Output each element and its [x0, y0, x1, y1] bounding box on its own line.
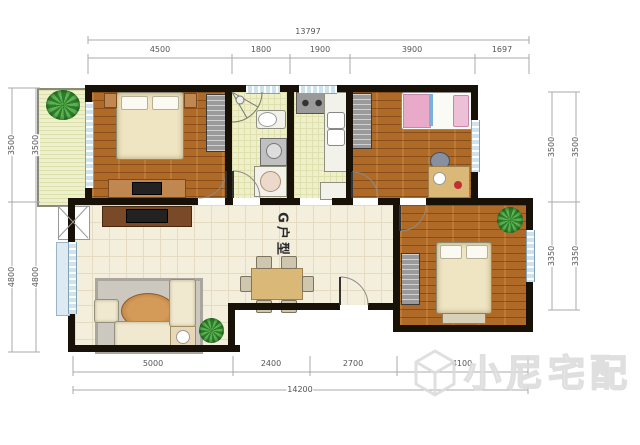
- sofa-chaise: [169, 279, 196, 327]
- bedroom3-window: [526, 230, 535, 282]
- bedroom2-window: [471, 120, 480, 172]
- sink-basin: [327, 112, 345, 129]
- dining-chair: [256, 256, 272, 269]
- table-lamp: [176, 330, 190, 344]
- wall-top: [85, 85, 478, 92]
- wash-basin: [260, 171, 281, 192]
- pillow: [152, 96, 179, 110]
- balcony-window: [85, 102, 94, 188]
- armchair: [94, 299, 119, 323]
- dim-left-seg: 3500: [32, 134, 40, 156]
- pillow: [440, 245, 462, 259]
- sink-basin: [327, 129, 345, 146]
- plant-icon: [199, 318, 224, 343]
- floor-plan-canvas: 13797 4500 1800 1900 3900 1697 5000 2400…: [0, 0, 640, 445]
- sofa: [114, 321, 176, 348]
- dim-left-seg: 4800: [32, 266, 40, 288]
- dim-top-total: 13797: [294, 28, 321, 36]
- dim-bottom-seg: 2400: [260, 360, 282, 368]
- dim-top-seg: 1697: [491, 46, 513, 54]
- wall-mid: [426, 198, 533, 205]
- bedroom2-wardrobe: [351, 93, 372, 149]
- wall-entry-bottom: [228, 303, 340, 310]
- blanket-stripe: [429, 94, 433, 126]
- master-tv: [132, 182, 162, 195]
- pillow: [121, 96, 148, 110]
- plan-unit-label: G户型: [275, 212, 294, 258]
- plant-icon: [46, 90, 80, 120]
- bedroom3-wardrobe: [401, 253, 420, 305]
- wall-master-bath: [225, 85, 232, 205]
- toilet-bowl: [258, 112, 277, 127]
- dim-bottom-total: 14200: [286, 386, 313, 394]
- wall-living-bottom: [68, 345, 240, 352]
- dining-chair: [240, 276, 252, 292]
- desk-item: [433, 172, 446, 185]
- dim-top-seg: 3900: [401, 46, 423, 54]
- bed-bench: [442, 313, 486, 324]
- dim-right-seg: 3500: [548, 136, 556, 158]
- nightstand: [184, 93, 197, 108]
- dining-table: [251, 268, 303, 300]
- wall-bath-kitchen: [287, 85, 294, 205]
- desk-flower: [454, 181, 462, 189]
- dim-right-seg: 3350: [572, 245, 580, 267]
- brand-logo-icon: [412, 348, 458, 398]
- dim-top-seg: 1900: [309, 46, 331, 54]
- plant-icon: [497, 207, 523, 233]
- bed-blanket: [403, 94, 431, 128]
- wall-mid: [332, 198, 352, 205]
- living-window: [68, 242, 77, 314]
- dim-top-seg: 1800: [250, 46, 272, 54]
- dim-left-seg: 4800: [8, 266, 16, 288]
- kitchen-window: [299, 85, 337, 94]
- washer-drum: [266, 143, 282, 159]
- wall-bedroom3-left: [393, 198, 400, 332]
- wall-mid: [68, 198, 198, 205]
- wall-bedroom3-bottom: [393, 325, 533, 332]
- bathroom-window: [246, 85, 280, 94]
- pillow: [453, 95, 469, 127]
- living-tv: [126, 209, 168, 223]
- watermark: 小尼宅配: [412, 348, 632, 398]
- dim-right-seg: 3350: [548, 245, 556, 267]
- wall-mid: [226, 198, 233, 205]
- dim-left-seg: 3500: [8, 134, 16, 156]
- pillow: [466, 245, 488, 259]
- dim-bottom-seg: 2700: [342, 360, 364, 368]
- dim-bottom-seg: 5000: [142, 360, 164, 368]
- wall-step: [228, 303, 235, 352]
- watermark-text: 小尼宅配: [464, 355, 632, 392]
- nightstand: [104, 93, 117, 108]
- dining-chair: [302, 276, 314, 292]
- dim-right-seg: 3500: [572, 136, 580, 158]
- wall-kitchen-bedroom2: [346, 85, 353, 205]
- dim-top-seg: 4500: [149, 46, 171, 54]
- wall-mid: [260, 198, 300, 205]
